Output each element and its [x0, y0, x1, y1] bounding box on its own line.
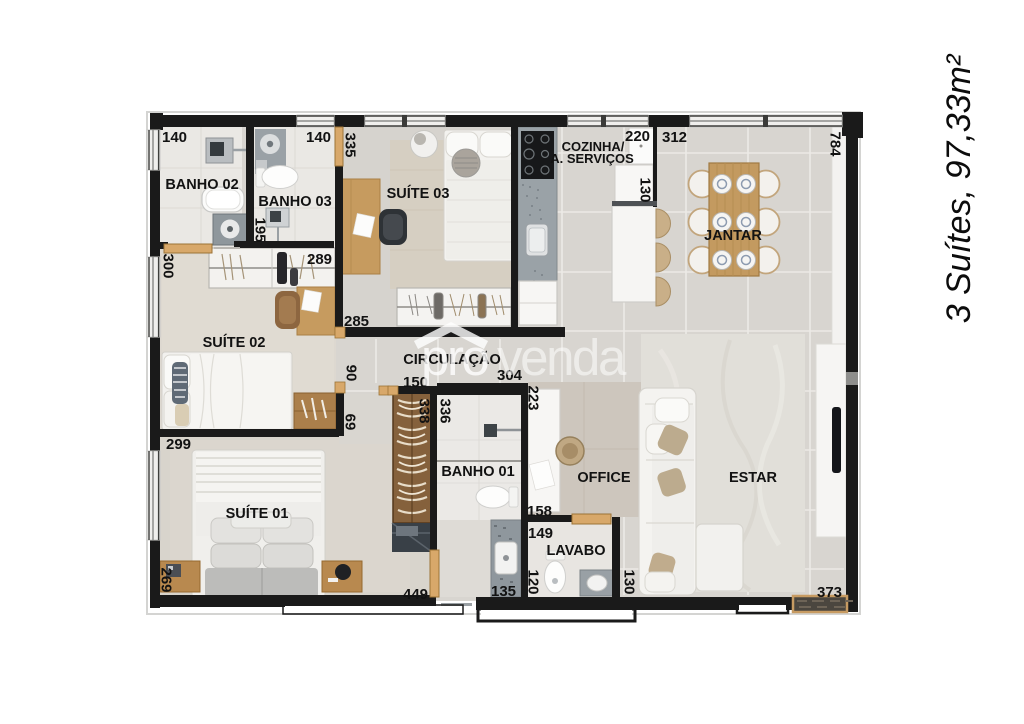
svg-text:195: 195 — [252, 217, 269, 242]
svg-text:BANHO 02: BANHO 02 — [165, 177, 238, 193]
svg-text:BANHO 03: BANHO 03 — [258, 194, 331, 210]
svg-text:SUÍTE 02: SUÍTE 02 — [203, 334, 266, 351]
svg-text:ESTAR: ESTAR — [729, 470, 778, 486]
svg-text:3 Suítes, 97,33m²: 3 Suítes, 97,33m² — [940, 53, 978, 323]
svg-text:140: 140 — [162, 129, 187, 146]
svg-text:135: 135 — [491, 583, 516, 600]
svg-text:A. SERVIÇOS: A. SERVIÇOS — [550, 151, 634, 166]
svg-text:130: 130 — [637, 177, 654, 202]
svg-text:300: 300 — [160, 253, 177, 278]
svg-text:venda: venda — [497, 329, 627, 386]
svg-text:373: 373 — [817, 584, 842, 601]
svg-text:149: 149 — [528, 525, 553, 542]
svg-text:SUÍTE 03: SUÍTE 03 — [387, 185, 450, 202]
svg-text:90: 90 — [343, 365, 360, 382]
svg-text:223: 223 — [525, 385, 542, 410]
svg-text:JANTAR: JANTAR — [704, 228, 762, 244]
svg-text:336: 336 — [437, 398, 454, 423]
svg-text:158: 158 — [527, 503, 552, 520]
svg-text:299: 299 — [166, 436, 191, 453]
svg-text:130: 130 — [621, 569, 638, 594]
svg-text:285: 285 — [344, 313, 369, 330]
svg-text:784: 784 — [827, 131, 844, 157]
svg-text:338: 338 — [416, 398, 433, 423]
svg-text:LAVABO: LAVABO — [546, 543, 605, 559]
svg-text:pro: pro — [421, 329, 489, 386]
svg-text:449: 449 — [403, 586, 428, 603]
svg-text:OFFICE: OFFICE — [577, 470, 630, 486]
svg-text:312: 312 — [662, 129, 687, 146]
svg-text:BANHO 01: BANHO 01 — [441, 464, 514, 480]
svg-text:269: 269 — [158, 567, 175, 592]
svg-text:335: 335 — [342, 132, 359, 157]
svg-text:SUÍTE 01: SUÍTE 01 — [226, 505, 289, 522]
svg-text:120: 120 — [525, 569, 542, 594]
svg-text:220: 220 — [625, 128, 650, 145]
svg-text:69: 69 — [342, 414, 359, 431]
svg-text:140: 140 — [306, 129, 331, 146]
svg-text:289: 289 — [307, 251, 332, 268]
